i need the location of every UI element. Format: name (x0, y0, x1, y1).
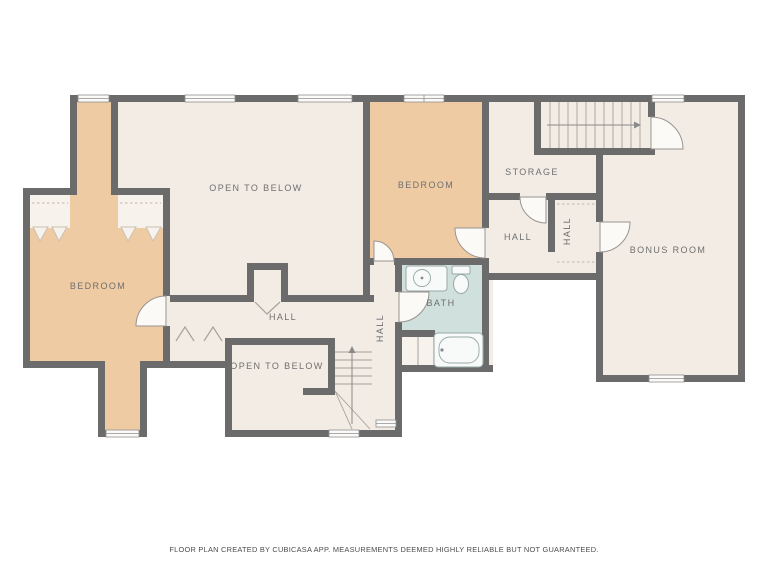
bedroom-left-corridor (77, 102, 111, 195)
wall-block-bottom (225, 430, 402, 437)
wall (328, 338, 335, 395)
room-label-hall-lower: HALL (269, 312, 297, 322)
bathtub (434, 333, 483, 367)
window (185, 95, 235, 102)
room-label-bath: BATH (427, 298, 456, 308)
wall (70, 95, 77, 195)
wall-hall-divider (548, 193, 555, 252)
room-label-bedroom-left: BEDROOM (70, 281, 126, 291)
wall (23, 361, 105, 368)
room-label-open-to-below-bottom: OPEN TO BELOW (230, 361, 323, 371)
floor-plan-page: OPEN TO BELOW BEDROOM BEDROOM STORAGE HA… (0, 0, 767, 575)
closet-left (30, 195, 70, 228)
wall (395, 258, 402, 292)
wall (281, 295, 374, 302)
window (78, 95, 109, 102)
bath-closet (402, 337, 433, 365)
wall (247, 263, 254, 302)
wall-bath-inner (402, 330, 435, 337)
wall (596, 252, 603, 382)
wall (163, 188, 170, 296)
room-label-bedroom-center: BEDROOM (398, 180, 454, 190)
railing-opening (376, 420, 396, 427)
window (298, 95, 352, 102)
window (652, 95, 684, 102)
window (649, 375, 684, 382)
wall (111, 188, 170, 195)
storage-halls-base (482, 95, 603, 280)
floor-plan-canvas: OPEN TO BELOW BEDROOM BEDROOM STORAGE HA… (0, 0, 767, 575)
wall (225, 338, 332, 345)
footer-disclaimer: FLOOR PLAN CREATED BY CUBICASA APP. MEAS… (169, 545, 598, 554)
toilet (452, 266, 470, 294)
railing-opening (329, 430, 359, 437)
window (106, 430, 139, 437)
wall (111, 95, 118, 195)
room-label-hall-upper: HALL (504, 232, 532, 242)
wall (394, 258, 489, 265)
wall (140, 361, 225, 368)
room-label-hall-stair: HALL (375, 314, 385, 342)
wall (163, 295, 254, 302)
room-label-bonus-room: BONUS ROOM (630, 245, 707, 255)
wall (225, 338, 232, 437)
open-to-below-bottom-base (225, 338, 402, 437)
wall-halls-bottom (482, 273, 603, 280)
wall (596, 148, 603, 222)
closet-right (118, 195, 163, 228)
wall-right-outer (738, 95, 745, 382)
wall-stairs-left (534, 95, 541, 155)
wall-stairs-bottom (534, 148, 655, 155)
wall (23, 188, 77, 195)
wall (281, 263, 288, 302)
wall (163, 326, 170, 368)
wall (140, 361, 147, 437)
wall (98, 361, 105, 437)
room-label-open-to-below-top: OPEN TO BELOW (209, 183, 302, 193)
wall (482, 95, 489, 228)
room-label-storage: STORAGE (505, 167, 559, 177)
window (404, 95, 444, 102)
bathroom-sink (406, 266, 447, 291)
room-label-hall-closet: HALL (562, 217, 572, 245)
wall (363, 95, 370, 302)
wall-left-outer (23, 188, 30, 368)
